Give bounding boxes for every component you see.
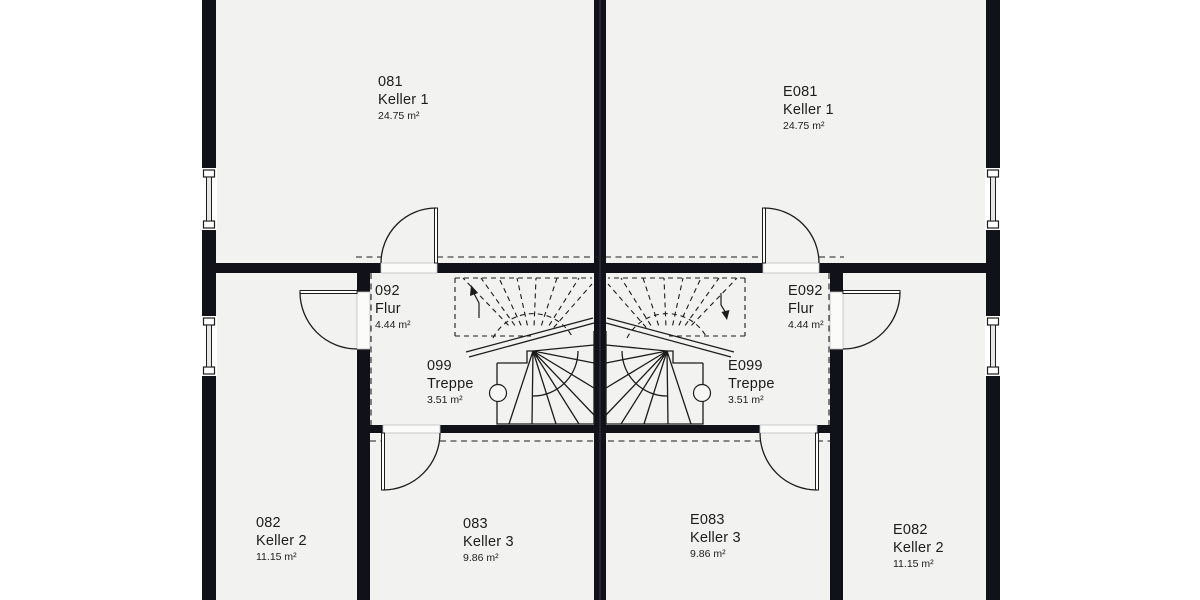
room-area: 24.75 m²	[378, 111, 429, 123]
wall-top-left	[204, 263, 381, 273]
wall-bottom-right-b	[606, 425, 760, 433]
threshold	[381, 263, 437, 273]
room-name: Keller 1	[783, 102, 834, 118]
room-name: Keller 2	[256, 533, 307, 549]
room-number: E081	[783, 84, 834, 100]
room-area: 4.44 m²	[375, 320, 411, 332]
room-name: Keller 3	[690, 530, 741, 546]
window-symbol-left-top	[201, 168, 217, 230]
room-name: Treppe	[728, 376, 775, 392]
room-number: 083	[463, 516, 514, 532]
wall-top-right-inner	[606, 263, 763, 273]
room-number: 082	[256, 515, 307, 531]
room-name: Keller 2	[893, 540, 944, 556]
room-label-e099: E099 Treppe 3.51 m²	[728, 358, 775, 407]
room-number: E083	[690, 512, 741, 528]
stair-newel-post-right	[694, 385, 711, 402]
window-symbol-right-top	[985, 168, 1001, 230]
room-area: 24.75 m²	[783, 121, 834, 133]
room-number: E082	[893, 522, 944, 538]
room-area: 4.44 m²	[788, 320, 824, 332]
room-number: 081	[378, 74, 429, 90]
room-area: 3.51 m²	[427, 395, 474, 407]
room-label-092: 092 Flur 4.44 m²	[375, 283, 411, 332]
room-area: 3.51 m²	[728, 395, 775, 407]
partition-right	[830, 349, 843, 600]
room-area: 11.15 m²	[893, 559, 944, 571]
room-name: Flur	[788, 301, 824, 317]
room-name: Flur	[375, 301, 411, 317]
room-label-e092: E092 Flur 4.44 m²	[788, 283, 824, 332]
window-symbol-left-bottom	[201, 316, 217, 376]
wall-stub-left	[357, 273, 370, 292]
wall-bottom-right-a	[817, 425, 843, 433]
room-area: 9.86 m²	[463, 553, 514, 565]
room-area: 11.15 m²	[256, 552, 307, 564]
wall-top-left-inner	[437, 263, 594, 273]
room-label-e081: E081 Keller 1 24.75 m²	[783, 84, 834, 133]
floor-plan	[0, 0, 1200, 600]
exterior-wall-right	[986, 0, 1000, 600]
wall-top-right	[819, 263, 986, 273]
stair-newel-post-left	[490, 385, 507, 402]
threshold	[357, 292, 370, 349]
room-label-081: 081 Keller 1 24.75 m²	[378, 74, 429, 123]
room-number: E099	[728, 358, 775, 374]
room-name: Keller 1	[378, 92, 429, 108]
window-symbol-right-bottom	[985, 316, 1001, 376]
threshold	[383, 425, 440, 433]
room-area: 9.86 m²	[690, 549, 741, 561]
room-label-083: 083 Keller 3 9.86 m²	[463, 516, 514, 565]
threshold	[763, 263, 819, 273]
threshold	[760, 425, 817, 433]
partition-left	[357, 349, 370, 600]
wall-bottom-left-a	[357, 425, 383, 433]
room-number: E092	[788, 283, 824, 299]
room-name: Treppe	[427, 376, 474, 392]
room-number: 092	[375, 283, 411, 299]
room-number: 099	[427, 358, 474, 374]
room-label-e082: E082 Keller 2 11.15 m²	[893, 522, 944, 571]
exterior-wall-left	[202, 0, 216, 600]
room-name: Keller 3	[463, 534, 514, 550]
room-label-099: 099 Treppe 3.51 m²	[427, 358, 474, 407]
wall-stub-right	[830, 273, 843, 292]
floor-plan-page: 081 Keller 1 24.75 m² E081 Keller 1 24.7…	[0, 0, 1200, 600]
wall-bottom-left-b	[440, 425, 594, 433]
room-label-082: 082 Keller 2 11.15 m²	[256, 515, 307, 564]
threshold	[830, 292, 843, 349]
room-label-e083: E083 Keller 3 9.86 m²	[690, 512, 741, 561]
